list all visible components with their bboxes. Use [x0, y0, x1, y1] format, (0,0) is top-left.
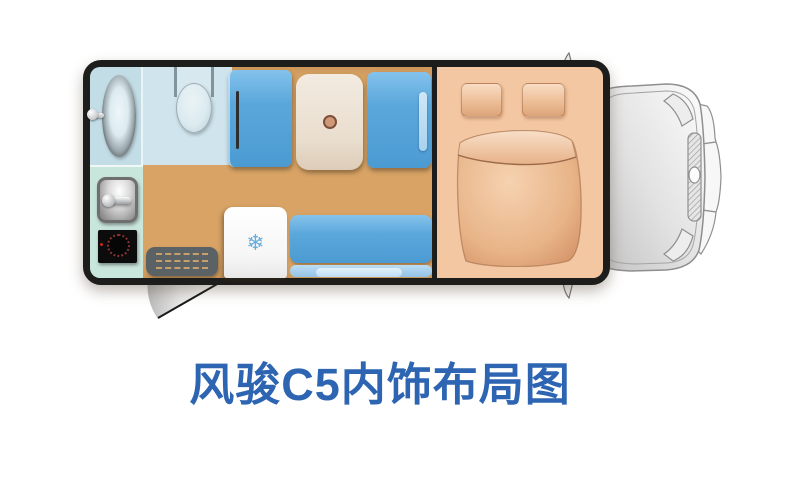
doormat-dashes — [156, 267, 208, 269]
bedroom — [432, 67, 603, 278]
stove — [98, 230, 137, 263]
dinette-seat-right — [367, 72, 431, 168]
page-title: 风骏C5内饰布局图 — [0, 348, 760, 413]
kitchen-block — [90, 165, 143, 278]
pillow-right — [522, 83, 565, 117]
truck-cab-outline — [588, 74, 736, 284]
shower-faucet-knob — [87, 109, 98, 120]
sofa-seat — [290, 215, 432, 263]
rv-body: ❄ — [83, 60, 610, 285]
entry-door-swing — [143, 282, 225, 320]
seat-slot — [236, 91, 239, 149]
stove-indicator — [100, 243, 103, 246]
dinette-table — [296, 74, 363, 170]
doormat-dashes — [156, 260, 208, 262]
bathroom-shower-room — [90, 67, 143, 165]
toilet-bowl — [176, 83, 212, 133]
snowflake-icon: ❄ — [246, 232, 264, 254]
floorplan-diagram: ❄ 风骏C5内饰布局图 — [0, 0, 800, 483]
bed-duvet — [450, 117, 592, 267]
stove-burner — [107, 234, 130, 257]
toilet-room — [143, 67, 232, 165]
dinette-seat-left — [228, 70, 292, 167]
sofa-step — [316, 268, 402, 277]
kitchen-sink — [97, 177, 138, 223]
seat-backrest — [419, 92, 427, 151]
sink-faucet-knob — [102, 194, 115, 207]
pillow-left — [461, 83, 502, 117]
fridge: ❄ — [224, 207, 287, 278]
doormat-dashes — [156, 253, 208, 255]
shower-tub — [102, 75, 136, 157]
table-leg-mount — [323, 115, 337, 129]
entry-doormat — [146, 247, 218, 276]
